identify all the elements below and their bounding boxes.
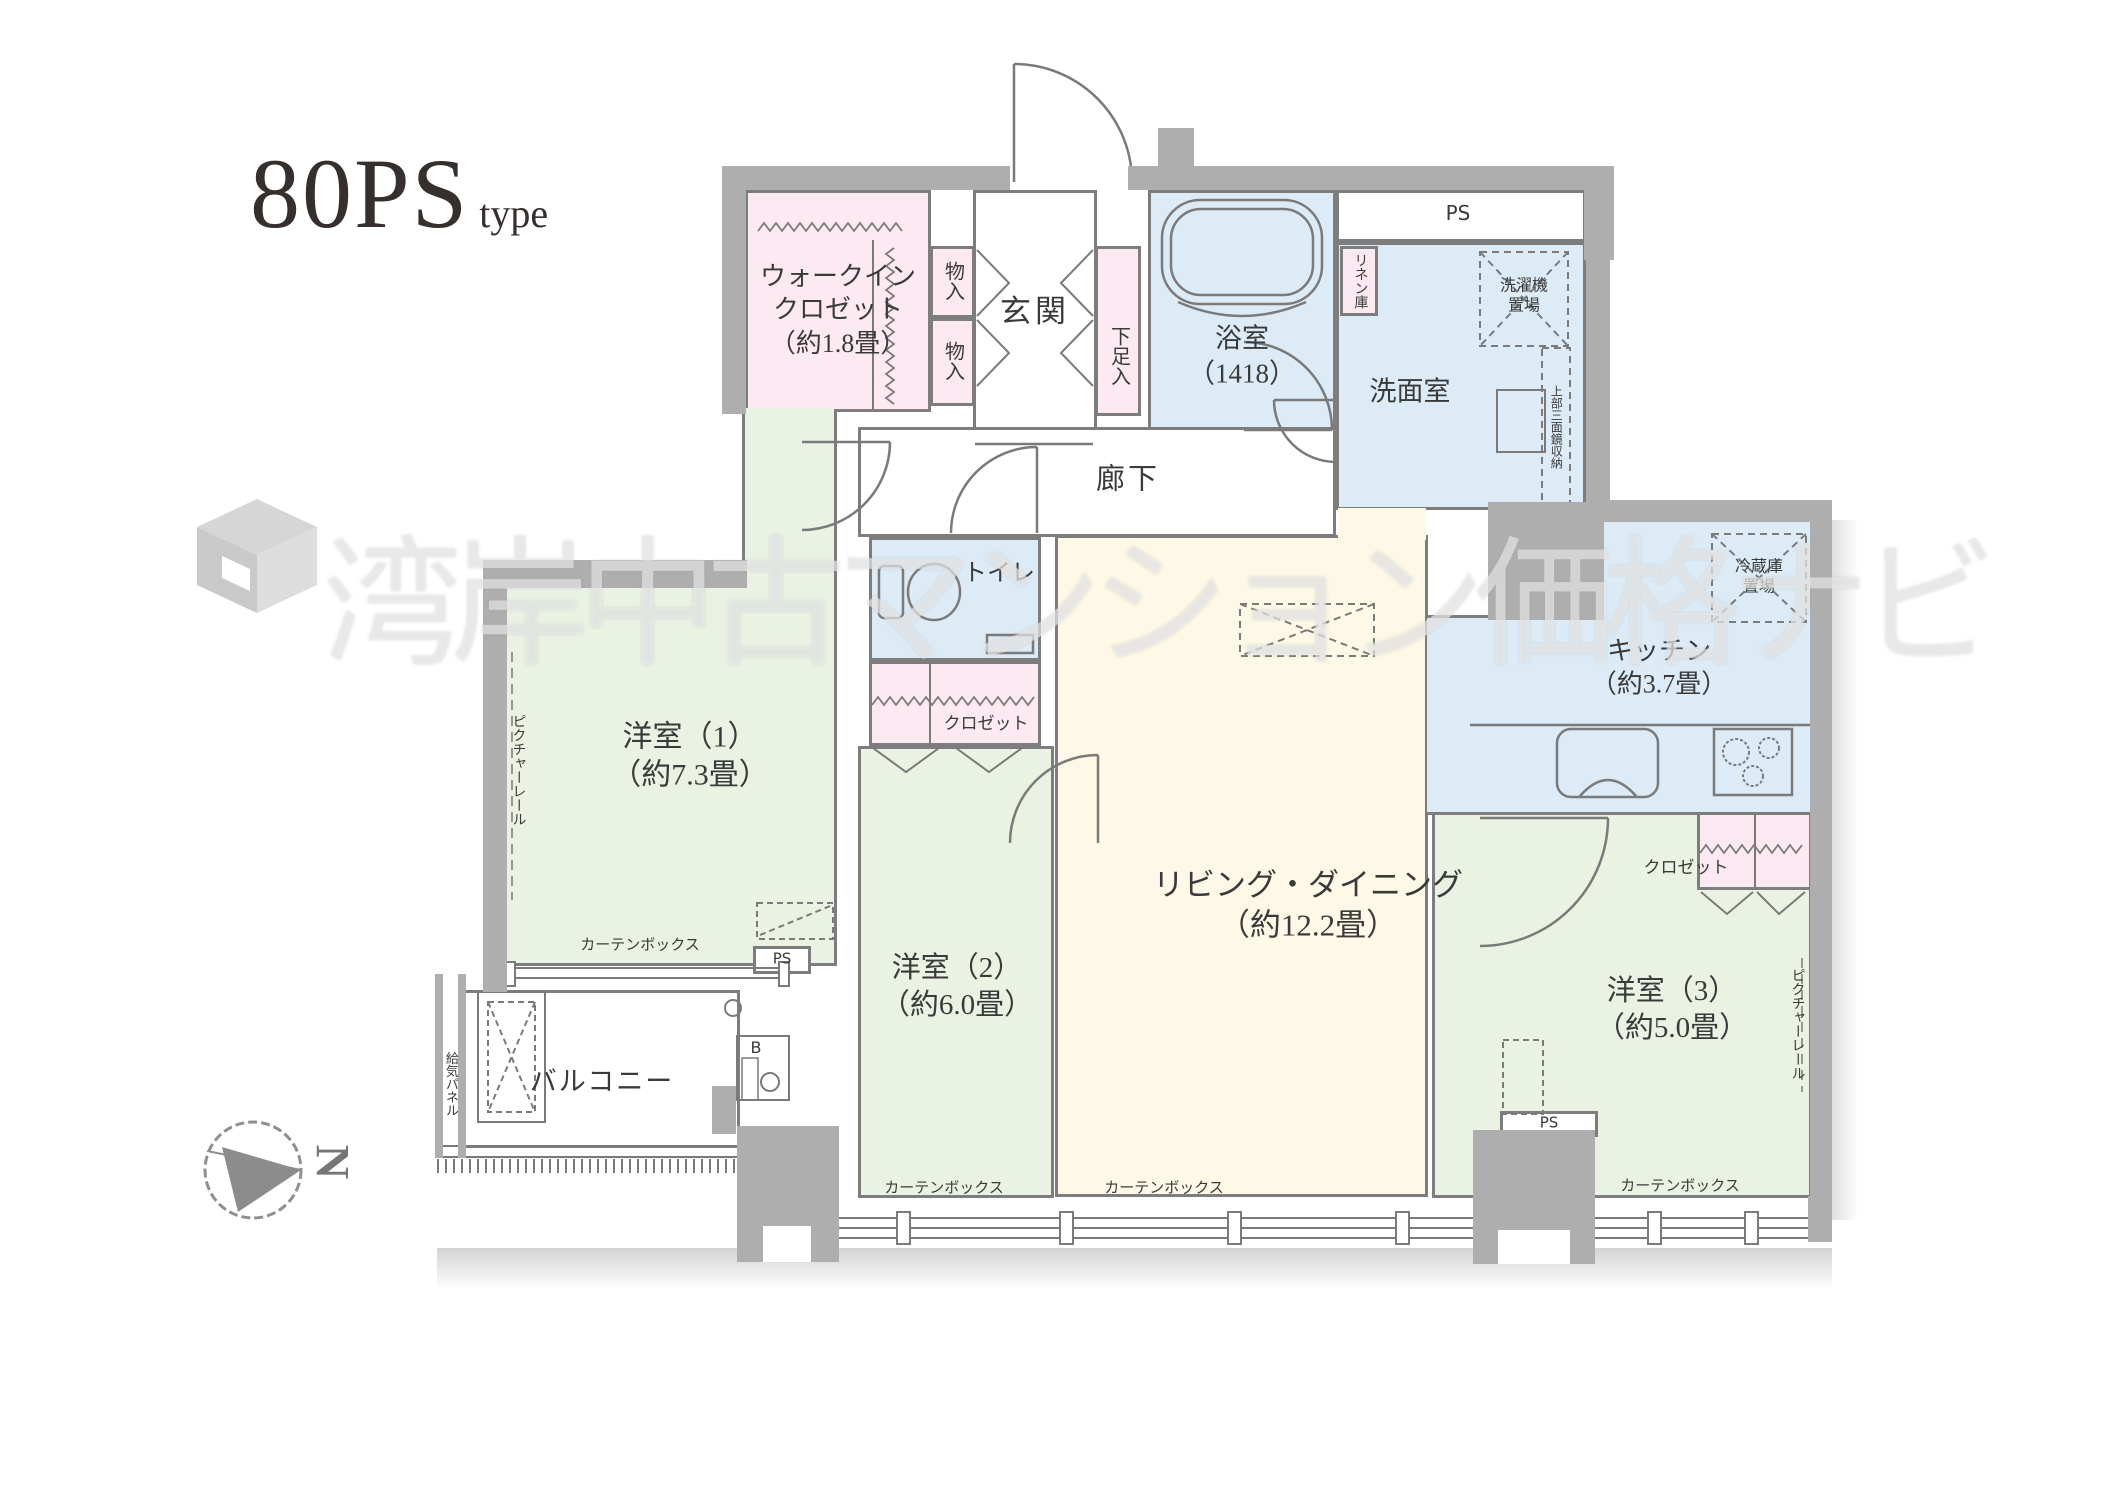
compass-needle: [222, 1147, 301, 1212]
label-yoshitsu1-name: 洋室（1）: [623, 721, 758, 754]
outer-wall-east: [1810, 500, 1832, 1216]
label-ps-left: PS: [773, 949, 792, 968]
pillar-notch-left: [763, 1226, 811, 1262]
window-post-2: [1060, 1212, 1073, 1244]
door-arc-genkan: [1014, 64, 1132, 182]
label-kitchen: キッチン （約3.7畳）: [1591, 635, 1728, 702]
outer-wall-top-left: [722, 166, 1010, 190]
compass-line: [207, 1151, 301, 1170]
window-y1-south: [512, 968, 783, 978]
label-yoshitsu1: 洋室（1） （約7.3畳）: [611, 719, 769, 796]
window-south-right: [1592, 1218, 1808, 1238]
label-living-name: リビング・ダイニング: [1153, 867, 1463, 902]
label-curtain-box-y1: カーテンボックス: [580, 936, 700, 955]
window-post-1: [897, 1212, 910, 1244]
label-living-size: （約12.2畳）: [1219, 907, 1397, 942]
shadow-right: [1832, 520, 1858, 1220]
label-kitchen-size: （約3.7畳）: [1591, 670, 1728, 699]
balcony-step: [712, 1086, 736, 1134]
label-toilet: トイレ: [963, 559, 1035, 590]
compass-circle: [205, 1122, 301, 1218]
label-wic-line1: ウォークイン: [760, 262, 916, 291]
room-living-patch: [1338, 508, 1426, 540]
outer-wall-se-stub: [1808, 1196, 1832, 1242]
label-wic-line3: （約1.8畳）: [770, 329, 907, 358]
pillar-notch-right: [1498, 1230, 1570, 1264]
label-yoshitsu3-size: （約5.0畳）: [1596, 1012, 1748, 1044]
label-washroom: 洗面室: [1370, 375, 1451, 410]
window-post-5: [1648, 1212, 1661, 1244]
label-wic-line2: クロゼット: [773, 295, 903, 324]
plan-title: 80PStype: [250, 136, 548, 251]
label-shoe-cabinet: 下足入: [1108, 326, 1129, 386]
label-curtain-box-ld: カーテンボックス: [1104, 1179, 1224, 1198]
window-south-left: [838, 1218, 1473, 1238]
label-yoshitsu2: 洋室（2） （約6.0畳）: [881, 950, 1033, 1024]
label-fridge: 冷蔵庫 置場: [1735, 558, 1783, 599]
floorplan-page: 80PStype: [0, 0, 2120, 1500]
label-washer-line2: 置場: [1508, 298, 1540, 315]
balcony-wall-left-outer: [435, 974, 443, 1158]
label-yoshitsu2-name: 洋室（2）: [892, 952, 1023, 984]
outer-wall-kitchen-top: [1604, 500, 1832, 522]
balcony-b-pipe: [742, 1058, 758, 1100]
label-bathroom: 浴室 （1418）: [1188, 321, 1296, 390]
label-b-mark: B: [751, 1038, 762, 1058]
label-wic: ウォークイン クロゼット （約1.8畳）: [760, 260, 916, 360]
label-mirror-cabinet: 上部三面鏡収納: [1550, 385, 1563, 469]
outer-wall-east-upper: [1586, 258, 1610, 522]
outer-wall-y1-top: [483, 560, 747, 588]
room-bathroom: [1148, 190, 1336, 430]
pillar-kitchen-nw: [1488, 502, 1604, 620]
label-yoshitsu3: 洋室（3） （約5.0畳）: [1596, 973, 1748, 1047]
label-living-dining: リビング・ダイニング （約12.2畳）: [1153, 865, 1463, 944]
window-post-4: [1396, 1212, 1409, 1244]
label-monoire-2: 物入: [942, 341, 963, 381]
label-monoire-1: 物入: [942, 261, 963, 301]
label-yoshitsu1-size: （約7.3畳）: [611, 759, 769, 792]
label-kitchen-name: キッチン: [1607, 637, 1711, 666]
label-washer: 洗濯機 置場: [1500, 277, 1548, 318]
label-washer-line1: 洗濯機: [1500, 278, 1548, 295]
window-post-6: [1745, 1212, 1758, 1244]
shadow-bottom: [437, 1248, 1832, 1290]
pillar-top-right: [1584, 166, 1614, 260]
label-ps-top: PS: [1446, 201, 1471, 227]
label-yoshitsu3-name: 洋室（3）: [1607, 975, 1738, 1007]
label-corridor: 廊下: [1096, 461, 1160, 498]
label-kyuki-panel: 給気パネル: [444, 1052, 458, 1117]
label-closet-y3: クロゼット: [1644, 857, 1729, 879]
label-fridge-line2: 置場: [1743, 579, 1775, 596]
label-yoshitsu2-size: （約6.0畳）: [881, 989, 1033, 1021]
balcony-wall-left-inner: [458, 974, 466, 1158]
compass-north-letter: N: [305, 1145, 360, 1180]
watermark-logo: [197, 499, 317, 613]
balcony-b-box: [737, 1036, 789, 1100]
outer-wall-west: [483, 560, 507, 992]
outer-wall-wic-left: [722, 166, 746, 414]
plan-title-sub: type: [479, 191, 548, 236]
label-balcony: バルコニー: [530, 1065, 674, 1100]
label-genkan: 玄関: [1000, 292, 1070, 332]
label-curtain-box-y3: カーテンボックス: [1620, 1177, 1740, 1196]
label-fridge-line1: 冷蔵庫: [1735, 559, 1783, 576]
label-bathroom-name: 浴室: [1215, 323, 1269, 353]
plan-title-main: 80PS: [250, 138, 469, 249]
room-yoshitsu1-strip: [745, 408, 834, 590]
label-bathroom-size: （1418）: [1188, 358, 1296, 388]
label-picture-rail-y3: ピクチャーレール: [1789, 968, 1804, 1080]
pillar-entry-bump: [1158, 128, 1194, 168]
balcony-b-drain: [761, 1073, 779, 1091]
room-toilet: [869, 537, 1041, 661]
label-picture-rail-y1: ピクチャーレール: [510, 714, 525, 826]
window-post-3: [1228, 1212, 1241, 1244]
label-closet-y2: クロゼット: [944, 713, 1029, 735]
label-curtain-box-y2: カーテンボックス: [884, 1179, 1004, 1198]
label-linen: リネン庫: [1352, 253, 1367, 309]
outer-wall-top-right: [1128, 166, 1586, 190]
label-ps-bottom: PS: [1540, 1113, 1559, 1132]
